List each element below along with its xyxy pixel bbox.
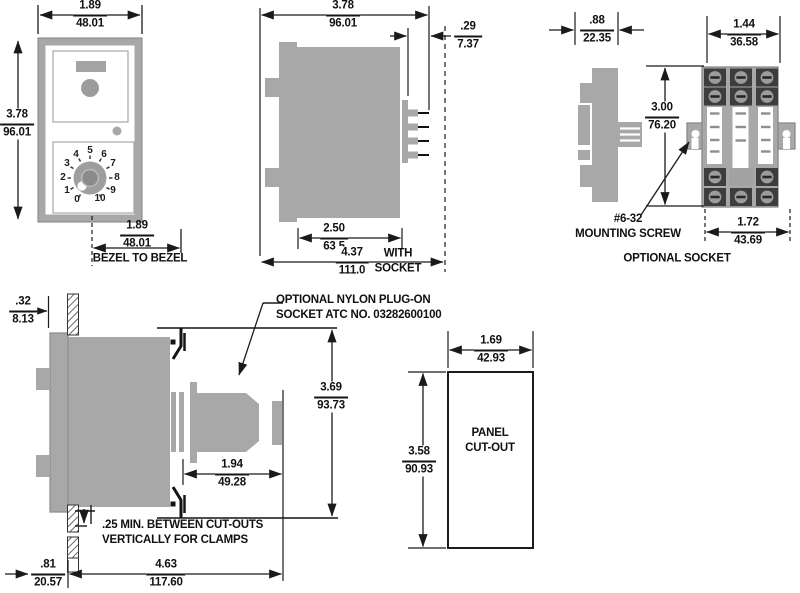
mm-value: 76.20 xyxy=(645,118,679,133)
inch-value: .81 xyxy=(37,559,58,574)
dim-terminal-depth: .29 7.37 xyxy=(454,21,482,52)
dim-front-projection: .81 20.57 xyxy=(31,559,65,590)
plug-on-socket-callout-line1: OPTIONAL NYLON PLUG-ON xyxy=(276,293,441,308)
mounting-hole-right xyxy=(783,130,791,138)
contact-slot xyxy=(707,107,722,164)
panel-cutout-label-line2: CUT-OUT xyxy=(465,441,515,456)
dimension-drawing: 1.89 48.01 3.78 96.01 1.89 48.01 3.78 96… xyxy=(0,0,800,593)
mm-value: 42.93 xyxy=(474,351,508,366)
inch-value: 3.58 xyxy=(405,446,433,461)
side-view-drawing xyxy=(260,6,451,272)
clamp-note: .25 MIN. BETWEEN CUT-OUTS VERTICALLY FOR… xyxy=(102,518,263,548)
mm-value: 22.35 xyxy=(580,31,614,46)
dial-number-7: 7 xyxy=(110,159,116,169)
contact-slot xyxy=(733,107,749,168)
panel-cutout-label-line1: PANEL xyxy=(465,426,515,441)
panel-cutout-label: PANEL CUT-OUT xyxy=(465,426,515,456)
inch-value: 3.78 xyxy=(3,109,31,124)
mounting-screw-label-line2: MOUNTING SCREW xyxy=(575,227,681,242)
plug-on-socket-callout-line2: SOCKET ATC NO. 03282600100 xyxy=(276,308,441,323)
mm-value: 7.37 xyxy=(454,37,482,52)
inch-value: 1.44 xyxy=(730,19,758,34)
dim-socket-height: 3.00 76.20 xyxy=(645,102,679,133)
dial-number-6: 6 xyxy=(101,150,107,160)
inch-value: 1.94 xyxy=(218,459,246,474)
inch-value: 4.37 xyxy=(338,247,366,262)
dim-depth-with-socket: 4.37 111.0 xyxy=(336,247,369,278)
inch-value: 1.72 xyxy=(734,217,762,232)
front-view-drawing xyxy=(18,5,181,266)
dial-number-3: 3 xyxy=(64,159,70,169)
mm-value: 48.01 xyxy=(120,236,154,251)
inch-value: 3.69 xyxy=(317,382,345,397)
mounting-screw-label-line1: #6-32 xyxy=(575,212,681,227)
indicator-lens xyxy=(81,79,99,97)
dial-number-2: 2 xyxy=(60,173,66,183)
dim-socket-depth: .88 22.35 xyxy=(580,15,614,46)
bezel-to-bezel-label: BEZEL TO BEZEL xyxy=(93,252,188,267)
inch-value: 4.63 xyxy=(152,559,180,574)
mounting-screw-label: #6-32 MOUNTING SCREW xyxy=(575,212,681,242)
dial-number-9: 9 xyxy=(110,186,116,196)
plug-on-socket-callout: OPTIONAL NYLON PLUG-ON SOCKET ATC NO. 03… xyxy=(276,293,441,323)
relay-side-body xyxy=(265,42,418,222)
dial-number-1: 1 xyxy=(64,186,70,196)
dim-side-height: 3.78 96.01 xyxy=(326,0,360,31)
mm-value: 117.60 xyxy=(146,575,185,590)
dim-cutout-width: 1.69 42.93 xyxy=(474,335,508,366)
mm-value: 20.57 xyxy=(31,575,65,590)
inch-value: 1.89 xyxy=(76,0,104,14)
dial-number-10: 10 xyxy=(94,194,105,204)
clamp-note-line2: VERTICALLY FOR CLAMPS xyxy=(102,533,263,548)
dim-behind-panel-depth: 3.69 93.73 xyxy=(314,382,348,413)
dial-number-4: 4 xyxy=(73,150,79,160)
mm-value: 36.58 xyxy=(727,35,761,50)
inch-value: .32 xyxy=(12,296,33,311)
dial-number-5: 5 xyxy=(87,146,93,156)
inch-value: .29 xyxy=(457,21,478,36)
mm-value: 43.69 xyxy=(731,233,765,248)
terminal-pins xyxy=(418,113,429,155)
contact-slot xyxy=(758,107,773,164)
mm-value: 48.01 xyxy=(73,16,107,31)
mm-value: 90.93 xyxy=(402,462,436,477)
relay-front-face xyxy=(38,38,142,222)
dim-front-height: 3.78 96.01 xyxy=(0,109,34,140)
dim-socket-clearance: 1.94 49.28 xyxy=(215,459,249,490)
dim-panel-thickness: .32 8.13 xyxy=(9,296,37,327)
with-socket-label-line2: SOCKET xyxy=(375,262,422,277)
plug-on-socket-leader xyxy=(239,303,263,375)
dial-number-0: 0 xyxy=(74,195,80,205)
mm-value: 111.0 xyxy=(336,263,369,278)
adjust-screw xyxy=(113,127,122,136)
inch-value: 3.78 xyxy=(329,0,357,14)
with-socket-label-line1: WITH xyxy=(384,247,413,262)
mm-value: 96.01 xyxy=(326,16,360,31)
dim-front-width: 1.89 48.01 xyxy=(73,0,107,31)
inch-value: 1.69 xyxy=(477,335,505,350)
dim-socket-width: 1.44 36.58 xyxy=(727,19,761,50)
dim-bezel-to-bezel: 1.89 48.01 xyxy=(120,220,154,251)
inch-value: 2.50 xyxy=(320,223,348,238)
mounting-hole-left xyxy=(692,130,700,138)
mm-value: 8.13 xyxy=(9,312,37,327)
inch-value: 3.00 xyxy=(648,102,676,117)
optional-socket-caption: OPTIONAL SOCKET xyxy=(623,252,730,267)
plug-on-socket-body xyxy=(197,393,259,452)
mm-value: 93.73 xyxy=(314,398,348,413)
dial-number-8: 8 xyxy=(114,173,120,183)
panel-cutout-rect xyxy=(448,372,533,548)
dim-cutout-height: 3.58 90.93 xyxy=(402,446,436,477)
dim-socket-mount-spacing: 1.72 43.69 xyxy=(731,217,765,248)
window-label xyxy=(76,61,106,72)
mm-value: 49.28 xyxy=(215,475,249,490)
inch-value: 1.89 xyxy=(123,220,151,235)
mm-value: 96.01 xyxy=(0,125,34,140)
clamp-note-line1: .25 MIN. BETWEEN CUT-OUTS xyxy=(102,518,263,533)
dim-total-depth: 4.63 117.60 xyxy=(146,559,185,590)
inch-value: .88 xyxy=(586,15,607,30)
